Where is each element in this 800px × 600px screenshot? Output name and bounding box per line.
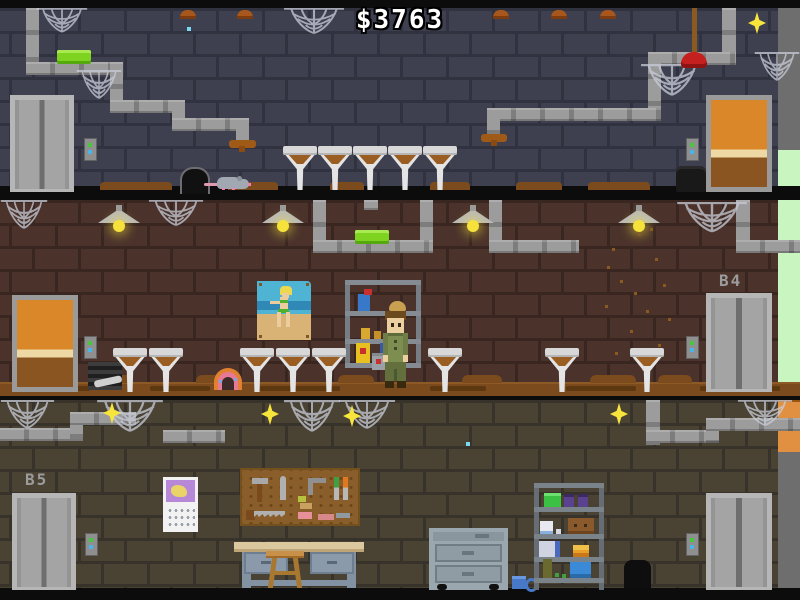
wrench-icon xyxy=(280,476,286,500)
spider-web xyxy=(676,202,748,244)
spider-web xyxy=(36,8,88,42)
fly-speck xyxy=(605,305,608,308)
face xyxy=(387,318,404,333)
dirty-toilet[interactable] xyxy=(276,348,310,392)
saw-icon xyxy=(246,510,255,520)
glowing-bulb xyxy=(748,12,766,34)
spider-web xyxy=(76,70,122,110)
ceiling-fixture xyxy=(237,10,253,19)
fly-speck xyxy=(638,233,641,236)
fly-speck xyxy=(646,310,649,313)
elevator-door-bottom-left[interactable] xyxy=(12,493,76,590)
spider-web xyxy=(0,200,48,240)
glowing-bulb xyxy=(610,403,628,425)
sparkle xyxy=(466,442,470,446)
call-button[interactable] xyxy=(686,533,699,556)
fly-speck xyxy=(630,330,633,333)
pipe xyxy=(163,430,225,443)
dirty-toilet[interactable] xyxy=(545,348,579,392)
call-button[interactable] xyxy=(85,533,98,556)
wooden-door-middle-left[interactable] xyxy=(12,295,78,392)
screwdriver-icon xyxy=(334,477,339,500)
dirty-toilet[interactable] xyxy=(423,146,457,190)
fly-speck xyxy=(658,344,661,347)
pipe xyxy=(487,108,661,121)
spider-web xyxy=(640,64,704,108)
dirty-toilet[interactable] xyxy=(353,146,387,190)
elevator-door-top-left[interactable] xyxy=(10,95,74,192)
dirt-mound xyxy=(462,375,502,383)
mug xyxy=(512,574,534,589)
spider-web xyxy=(737,400,793,436)
dirt-patch xyxy=(100,182,172,190)
dirty-toilet[interactable] xyxy=(630,348,664,392)
spider-web xyxy=(338,400,396,440)
fly-speck xyxy=(655,258,658,261)
rainbow-toy xyxy=(214,368,242,390)
game-viewport: B4 xyxy=(0,0,800,600)
dirt-patch xyxy=(588,182,650,190)
plunger-icon xyxy=(678,8,710,70)
rust-drip xyxy=(239,146,245,152)
spider-web xyxy=(96,400,164,444)
dirty-toilet[interactable] xyxy=(318,146,352,190)
fly-speck xyxy=(668,318,671,321)
ceiling-lamp xyxy=(98,205,140,235)
dirty-toilet[interactable] xyxy=(283,146,317,190)
dirty-toilet[interactable] xyxy=(388,146,422,190)
spider-web xyxy=(283,400,341,444)
spider-web xyxy=(754,52,800,92)
dirt-patch xyxy=(516,182,562,190)
pinup-poster xyxy=(257,281,311,340)
pipe xyxy=(489,240,579,253)
dirty-toilet[interactable] xyxy=(240,348,274,392)
dirty-toilet[interactable] xyxy=(428,348,462,392)
call-button[interactable] xyxy=(686,336,699,359)
sparkle xyxy=(187,27,191,31)
call-button[interactable] xyxy=(686,138,699,161)
stool xyxy=(266,551,304,588)
rolling-cabinet[interactable] xyxy=(429,528,508,590)
janitor-character[interactable] xyxy=(383,311,408,388)
storage-shelf[interactable] xyxy=(534,483,604,590)
spider-web xyxy=(283,8,345,44)
dirty-toilet[interactable] xyxy=(312,348,346,392)
call-button[interactable] xyxy=(84,138,97,161)
green-soap-pickup[interactable] xyxy=(57,50,91,64)
pipe xyxy=(722,8,736,58)
green-soap-pickup[interactable] xyxy=(355,230,389,244)
floor-label-b4: B4 xyxy=(719,271,742,290)
pipe xyxy=(364,200,378,210)
ceiling-lamp xyxy=(452,205,494,235)
rat[interactable] xyxy=(204,175,254,191)
fly-speck xyxy=(612,248,615,251)
fly-speck xyxy=(634,292,637,295)
call-button[interactable] xyxy=(84,336,97,359)
pegboard-tools xyxy=(240,468,360,526)
money-counter: $3763 xyxy=(356,5,444,35)
glowing-bulb xyxy=(261,403,279,425)
spider-web xyxy=(0,400,55,440)
fly-speck xyxy=(607,266,610,269)
fly-speck xyxy=(620,280,623,283)
elevator-door-bottom-right[interactable] xyxy=(706,493,772,590)
fly-speck xyxy=(663,284,666,287)
ceiling-lamp xyxy=(262,205,304,235)
spray-bottle xyxy=(358,294,370,311)
rust-drip xyxy=(491,140,497,146)
fly-speck xyxy=(615,352,618,355)
fly-speck xyxy=(650,228,653,231)
dirty-toilet[interactable] xyxy=(113,348,147,392)
ceiling-fixture xyxy=(180,10,196,19)
rag-hat xyxy=(389,301,406,311)
elevator-door-middle-right[interactable] xyxy=(706,293,772,392)
floor-label-b5: B5 xyxy=(25,470,48,489)
ceiling-lamp xyxy=(618,205,660,235)
dirty-toilet[interactable] xyxy=(149,348,183,392)
wooden-door-top-right[interactable] xyxy=(706,95,772,192)
dark-bucket xyxy=(624,560,651,588)
wall-calendar xyxy=(163,477,198,532)
ceiling-fixture xyxy=(493,10,509,19)
ceiling-fixture xyxy=(551,10,567,19)
spider-web xyxy=(148,200,204,236)
bucket xyxy=(676,166,706,192)
screwdriver-icon xyxy=(343,477,348,500)
ceiling-fixture xyxy=(600,10,616,19)
